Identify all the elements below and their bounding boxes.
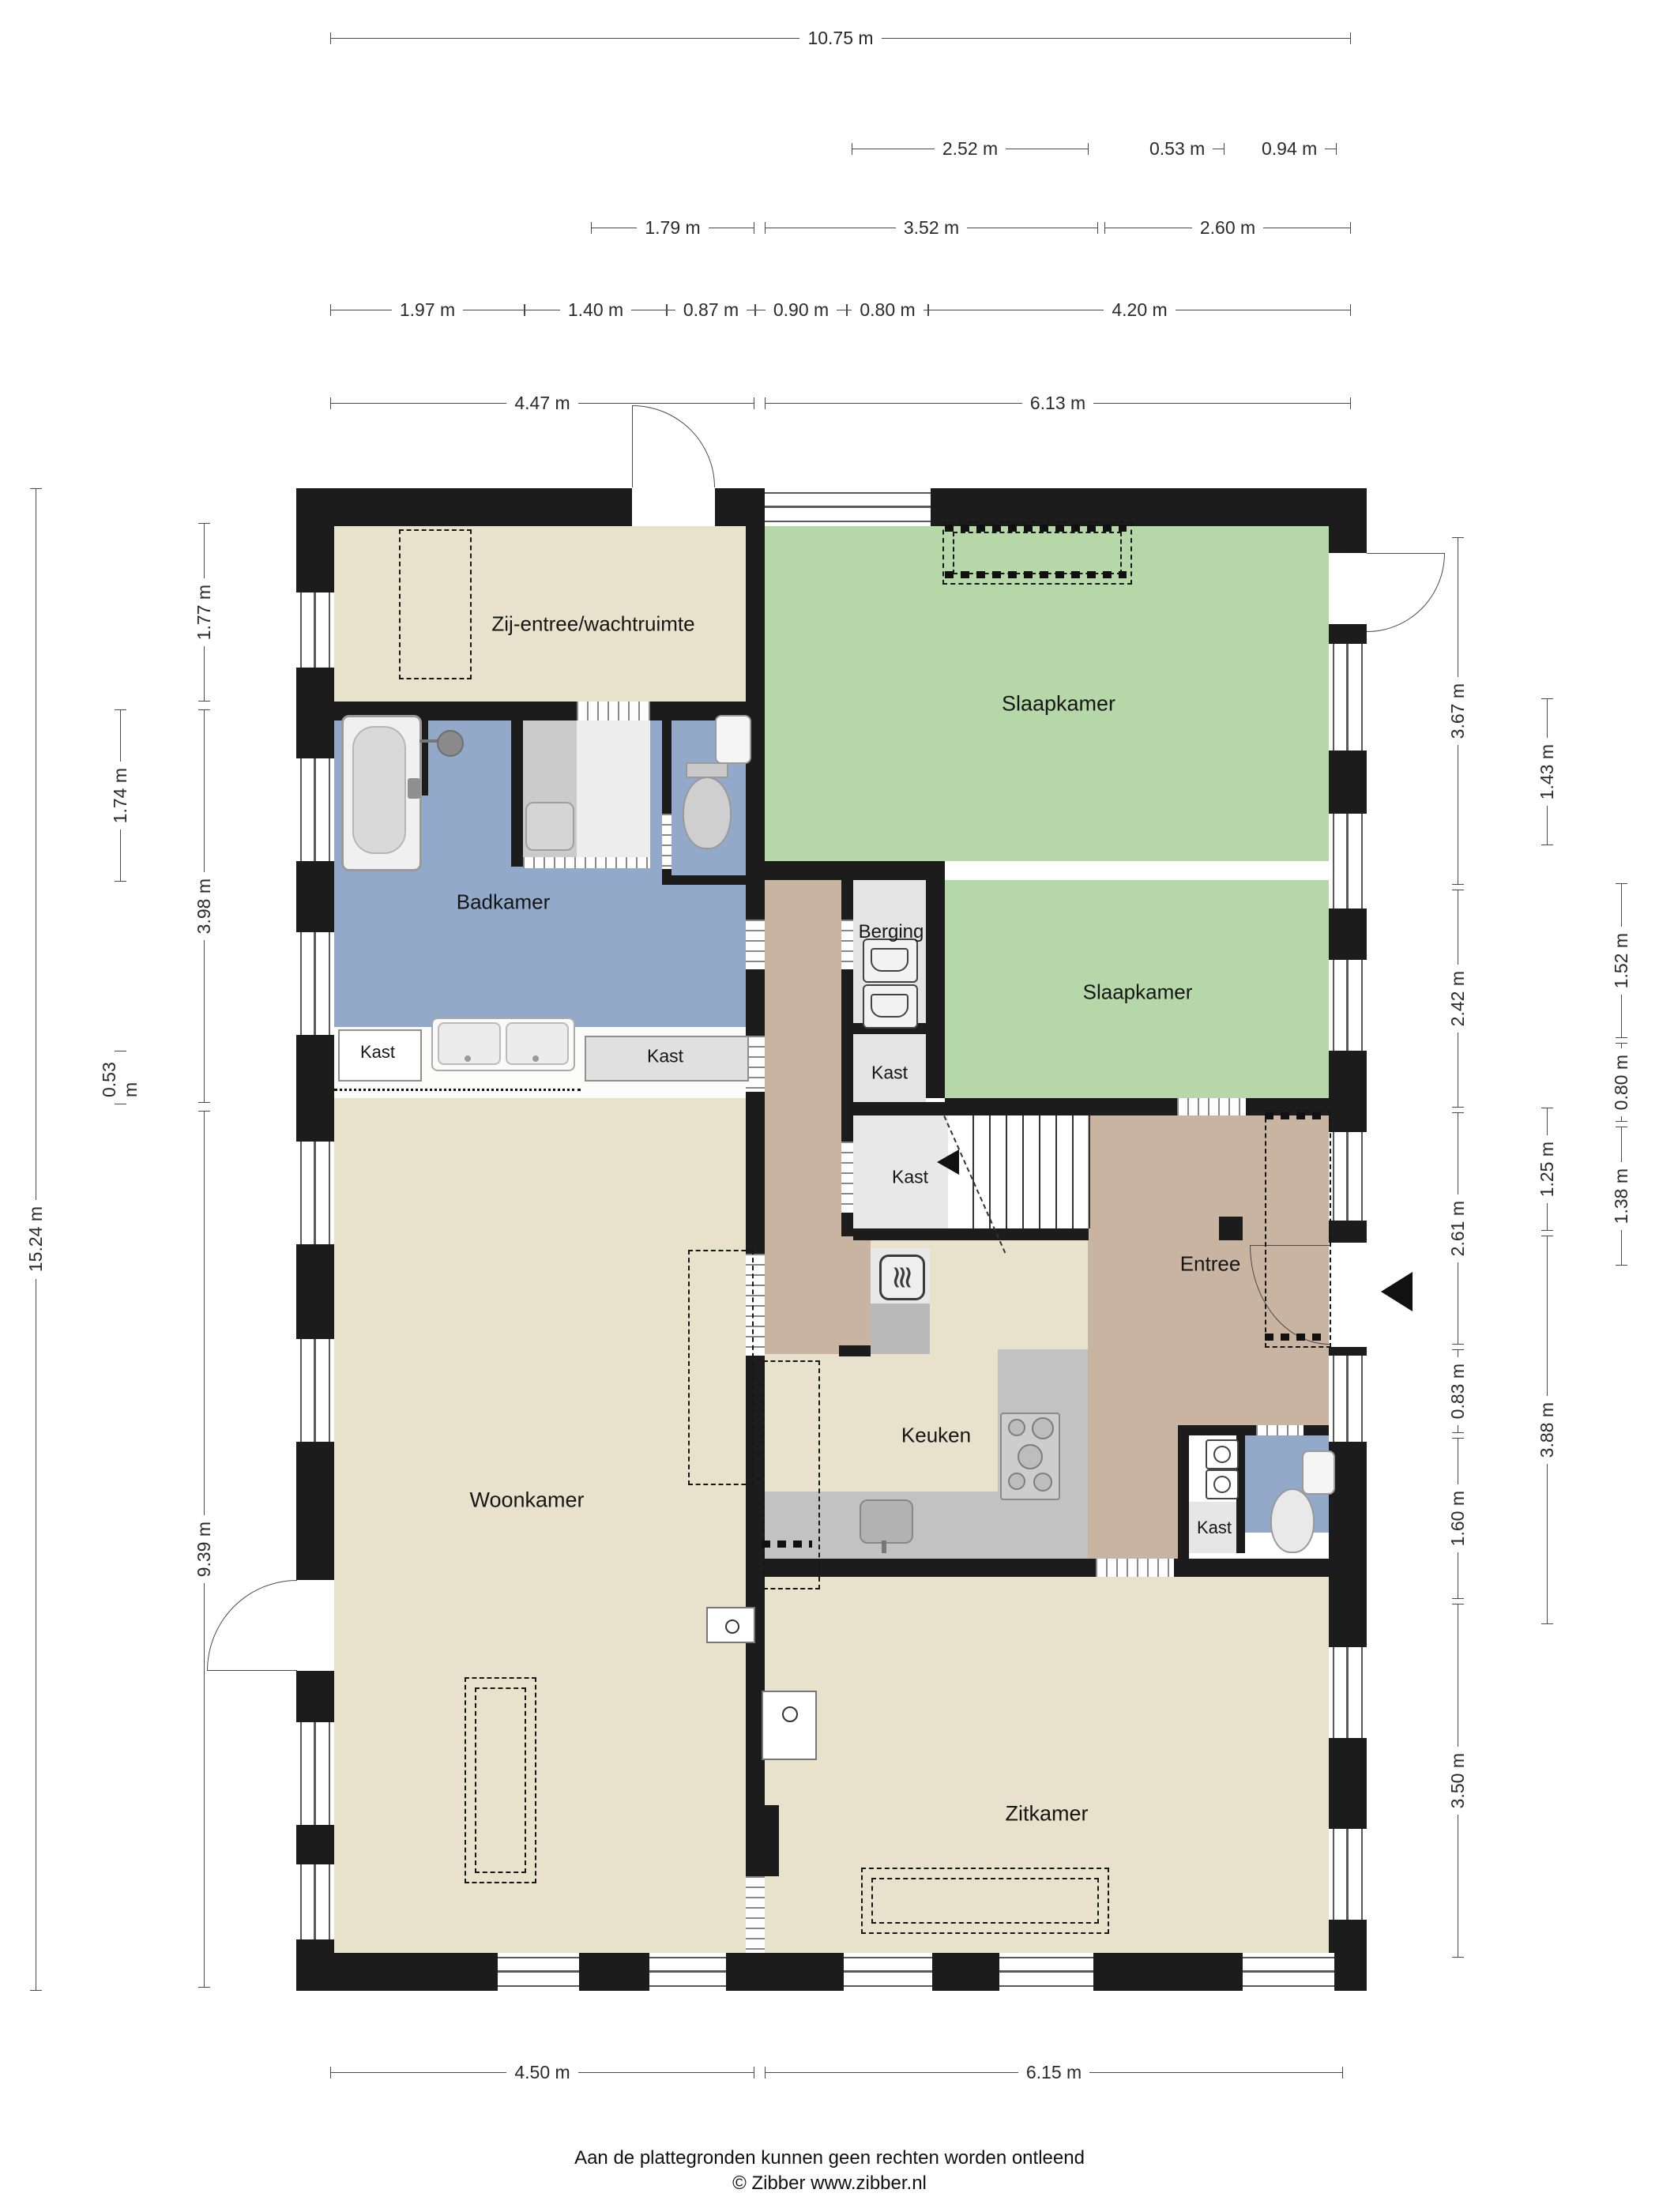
front-door-gap bbox=[1329, 1243, 1367, 1347]
dimension-label: 0.80 m bbox=[1611, 1055, 1632, 1110]
stair-tread bbox=[989, 1115, 991, 1228]
dimension-line bbox=[1458, 1552, 1458, 1598]
door-arc-left bbox=[207, 1580, 297, 1671]
dimension-line bbox=[668, 310, 675, 310]
dashed-marker bbox=[399, 529, 472, 679]
open-boundary-line bbox=[334, 1089, 581, 1091]
window bbox=[296, 1339, 334, 1442]
wall bbox=[839, 1345, 871, 1356]
wall bbox=[746, 526, 765, 720]
dimension-line bbox=[631, 310, 666, 310]
dimension-label: 3.50 m bbox=[1447, 1753, 1469, 1808]
dimension-line bbox=[1616, 1121, 1627, 1122]
door-opening bbox=[746, 1876, 765, 1953]
dimension-line bbox=[1452, 1432, 1464, 1433]
wall bbox=[765, 1559, 1329, 1577]
dimension-label: 1.97 m bbox=[400, 299, 455, 321]
dimension-line bbox=[1350, 397, 1351, 409]
dimension-line bbox=[1547, 699, 1548, 738]
door-opening bbox=[1256, 1425, 1303, 1435]
dimension-line bbox=[1541, 1623, 1553, 1624]
dimension-line bbox=[882, 38, 1350, 39]
dimension-line bbox=[115, 881, 126, 882]
door-opening bbox=[1177, 1098, 1246, 1115]
dotted-marker bbox=[945, 525, 1127, 532]
wall bbox=[296, 488, 632, 526]
boiler-dial bbox=[1213, 1476, 1231, 1493]
wall bbox=[1329, 1738, 1367, 1829]
dimension-label: 0.90 m bbox=[773, 299, 829, 321]
sink-drain bbox=[465, 1055, 471, 1062]
sink-drain bbox=[532, 1055, 539, 1062]
door-opening bbox=[577, 702, 650, 720]
label-berging: Berging bbox=[859, 921, 924, 943]
wall bbox=[926, 880, 945, 1098]
washer-icon-2 bbox=[863, 984, 918, 1029]
dimension-line bbox=[36, 1279, 36, 1990]
window bbox=[765, 488, 931, 526]
stair-tread bbox=[1089, 1115, 1090, 1228]
wall bbox=[1178, 1425, 1189, 1559]
dimension-label: 0.94 m bbox=[1262, 138, 1317, 160]
dimension-line bbox=[1350, 32, 1351, 44]
dimension-label: 0.87 m bbox=[683, 299, 739, 321]
wall bbox=[1329, 750, 1367, 814]
dimension-label: 1.79 m bbox=[645, 217, 700, 239]
dimension-line bbox=[837, 310, 846, 310]
dimension-line bbox=[1176, 310, 1350, 310]
window bbox=[1329, 644, 1367, 750]
window bbox=[844, 1953, 932, 1991]
wall bbox=[931, 488, 1367, 526]
dimension-line bbox=[1547, 806, 1548, 845]
wall bbox=[1093, 1953, 1243, 1991]
dashed-marker bbox=[475, 1687, 526, 1873]
label-kast-4: Kast bbox=[892, 1167, 928, 1188]
door-gap-top bbox=[632, 488, 715, 526]
floorplan-canvas: ≋Zij-entree/wachtruimteSlaapkamerBadkame… bbox=[0, 0, 1659, 2212]
dimension-line bbox=[1458, 1262, 1458, 1344]
label-woonkamer: Woonkamer bbox=[469, 1488, 584, 1513]
wall bbox=[1329, 488, 1367, 553]
dimension-line bbox=[1089, 2072, 1342, 2073]
dimension-line bbox=[120, 710, 121, 762]
door-opening bbox=[841, 1142, 853, 1213]
window bbox=[1243, 1953, 1334, 1991]
heater-gray-patch bbox=[871, 1303, 930, 1354]
dimension-label: 1.77 m bbox=[194, 585, 215, 640]
wall bbox=[841, 1102, 945, 1115]
fixture-box-2 bbox=[762, 1691, 817, 1760]
dimension-line bbox=[36, 489, 36, 1200]
dimension-line bbox=[1342, 2067, 1343, 2078]
dotted-marker bbox=[1265, 1112, 1328, 1119]
label-kast-2: Kast bbox=[647, 1046, 683, 1067]
wall bbox=[662, 875, 755, 885]
stove-burner bbox=[1008, 1473, 1025, 1490]
stair-arrow-icon bbox=[937, 1149, 959, 1175]
dimension-line bbox=[1621, 1230, 1622, 1265]
wall bbox=[726, 1953, 844, 1991]
door-opening bbox=[1096, 1559, 1174, 1577]
dimension-line bbox=[1452, 1598, 1464, 1599]
dimension-label: 1.40 m bbox=[568, 299, 623, 321]
dimension-line bbox=[204, 710, 205, 872]
stair-tread bbox=[1055, 1115, 1057, 1228]
dashed-marker bbox=[688, 1250, 754, 1485]
dimension-line bbox=[754, 397, 754, 409]
toilet-bowl-icon bbox=[683, 777, 732, 849]
dimension-line bbox=[1336, 143, 1337, 155]
label-keuken: Keuken bbox=[901, 1424, 971, 1448]
shower-head-icon bbox=[437, 730, 464, 757]
label-entree: Entree bbox=[1180, 1252, 1241, 1277]
wall bbox=[765, 861, 945, 880]
window bbox=[296, 758, 334, 861]
footer-disclaimer: Aan de plattegronden kunnen geen rechten… bbox=[0, 2147, 1659, 2169]
dimension-line bbox=[1105, 228, 1192, 228]
fixture-circle bbox=[725, 1619, 739, 1634]
dimension-label: 0.83 m bbox=[1447, 1364, 1469, 1419]
dimension-line bbox=[592, 228, 637, 228]
label-kast-1: Kast bbox=[360, 1042, 395, 1063]
kitchen-tap bbox=[882, 1540, 886, 1553]
dimension-line bbox=[1224, 143, 1224, 155]
dimension-line bbox=[1616, 1265, 1627, 1266]
dimension-line bbox=[115, 1104, 126, 1104]
dimension-label: 2.42 m bbox=[1447, 971, 1469, 1026]
fixture-circle bbox=[782, 1706, 798, 1722]
stove-burner bbox=[1008, 1419, 1025, 1436]
label-kast-3: Kast bbox=[871, 1063, 908, 1084]
bathtub-faucet-icon bbox=[408, 778, 420, 799]
room-woonkamer bbox=[334, 1098, 746, 1953]
wall bbox=[511, 720, 523, 867]
dimension-label: 1.38 m bbox=[1611, 1168, 1632, 1224]
passage-area bbox=[577, 720, 650, 857]
window bbox=[1329, 1132, 1367, 1221]
dimension-line bbox=[1263, 228, 1350, 228]
shower-tray-icon bbox=[525, 802, 574, 851]
dimension-line bbox=[1547, 1236, 1548, 1396]
dimension-label: 3.67 m bbox=[1447, 683, 1469, 739]
washer-wave bbox=[871, 994, 908, 1018]
dimension-label: 6.15 m bbox=[1026, 2062, 1082, 2083]
wall bbox=[1329, 624, 1367, 644]
window bbox=[1329, 1829, 1367, 1920]
entrance-marker-icon bbox=[1381, 1272, 1413, 1311]
dimension-line bbox=[1541, 845, 1553, 845]
door-arc-right-top bbox=[1367, 553, 1445, 632]
dimension-line bbox=[1097, 222, 1098, 234]
dimension-line bbox=[204, 524, 205, 578]
dimension-line bbox=[1458, 745, 1458, 884]
dimension-line bbox=[30, 1990, 42, 1991]
dimension-line bbox=[1093, 403, 1350, 404]
dimension-label: 9.39 m bbox=[194, 1522, 215, 1577]
wall bbox=[1329, 1051, 1367, 1132]
wall bbox=[296, 1035, 334, 1142]
wall bbox=[853, 1228, 1089, 1240]
wall bbox=[296, 488, 334, 592]
dimension-line bbox=[1213, 149, 1224, 149]
dimension-line bbox=[204, 646, 205, 701]
stove-burner bbox=[1033, 1473, 1052, 1492]
dimension-line bbox=[1350, 304, 1351, 316]
door-gap-right-top bbox=[1329, 553, 1367, 624]
dimension-label: 3.52 m bbox=[904, 217, 959, 239]
toilet-bowl-icon bbox=[1270, 1488, 1315, 1553]
stair-tread bbox=[1039, 1115, 1040, 1228]
dimension-line bbox=[852, 149, 935, 149]
dimension-label: 2.60 m bbox=[1200, 217, 1255, 239]
label-zij-entree: Zij-entree/wachtruimte bbox=[491, 612, 694, 637]
dimension-line bbox=[331, 403, 506, 404]
dimension-line bbox=[1458, 1113, 1458, 1194]
dashed-marker bbox=[1265, 1110, 1331, 1348]
wall bbox=[296, 861, 334, 932]
dimension-line bbox=[929, 310, 1104, 310]
washer-wave bbox=[871, 948, 908, 972]
dimension-line bbox=[747, 310, 754, 310]
dimension-line bbox=[1458, 1033, 1458, 1107]
wall bbox=[1329, 1920, 1367, 1991]
stair-tread bbox=[1072, 1115, 1074, 1228]
label-kast-5: Kast bbox=[1197, 1518, 1232, 1538]
door-opening bbox=[662, 814, 671, 869]
boiler-dial bbox=[1213, 1446, 1231, 1463]
dimension-label: 0.53 m bbox=[1149, 138, 1205, 160]
wall bbox=[296, 1244, 334, 1339]
dimension-line bbox=[1452, 1957, 1464, 1958]
dimension-line bbox=[754, 222, 754, 234]
wall bbox=[579, 1953, 649, 1991]
fixture-box-1 bbox=[706, 1607, 755, 1643]
wall bbox=[296, 1825, 334, 1864]
dashed-marker bbox=[763, 1360, 820, 1589]
dimension-line bbox=[198, 1987, 210, 1988]
dimension-label: 2.61 m bbox=[1447, 1201, 1469, 1256]
dimension-line bbox=[1458, 1425, 1458, 1432]
wall bbox=[1329, 1347, 1367, 1356]
stair-tread bbox=[972, 1115, 974, 1228]
dimension-line bbox=[967, 228, 1097, 228]
door-opening bbox=[746, 920, 765, 969]
dimension-line bbox=[1621, 1044, 1622, 1048]
wall bbox=[841, 880, 853, 1102]
dotted-marker bbox=[1265, 1334, 1328, 1341]
dimension-line bbox=[1547, 1203, 1548, 1230]
dimension-line bbox=[1452, 884, 1464, 885]
dimension-label: 3.88 m bbox=[1537, 1402, 1558, 1458]
stove-burner bbox=[1018, 1444, 1043, 1469]
dimension-line bbox=[525, 310, 560, 310]
dotted-marker bbox=[945, 571, 1127, 578]
dimension-line bbox=[331, 310, 392, 310]
dimension-line bbox=[120, 829, 121, 881]
hall-west-lower bbox=[765, 1236, 871, 1354]
label-badkamer: Badkamer bbox=[457, 890, 551, 915]
window bbox=[296, 1142, 334, 1244]
wall bbox=[296, 1939, 334, 1991]
window bbox=[498, 1953, 579, 1991]
stair-tread bbox=[1022, 1115, 1024, 1228]
dimension-label: 6.13 m bbox=[1030, 393, 1085, 414]
dimension-label: 2.52 m bbox=[942, 138, 998, 160]
door-opening bbox=[523, 857, 650, 868]
window bbox=[999, 1953, 1093, 1991]
window bbox=[1329, 960, 1367, 1051]
window bbox=[296, 1722, 334, 1825]
dimension-line bbox=[1458, 1604, 1458, 1747]
dimension-line bbox=[1616, 1037, 1627, 1038]
wall bbox=[296, 1442, 334, 1580]
window bbox=[296, 592, 334, 668]
dimension-label: 1.25 m bbox=[1537, 1142, 1558, 1197]
wall bbox=[932, 1953, 999, 1991]
dimension-line bbox=[1621, 884, 1622, 927]
dimension-label: 1.52 m bbox=[1611, 933, 1632, 988]
dimension-label: 3.98 m bbox=[194, 878, 215, 934]
dimension-label: 4.47 m bbox=[514, 393, 570, 414]
dimension-line bbox=[1452, 1344, 1464, 1345]
dimension-line bbox=[754, 2067, 754, 2078]
window bbox=[1329, 814, 1367, 908]
dotted-marker bbox=[762, 1540, 812, 1548]
dimension-line bbox=[1350, 222, 1351, 234]
dimension-line bbox=[1621, 1127, 1622, 1162]
wall bbox=[746, 1805, 779, 1876]
window bbox=[1329, 1356, 1367, 1442]
door-gap-left bbox=[296, 1580, 334, 1671]
dimension-line bbox=[1541, 1230, 1553, 1231]
dimension-line bbox=[331, 38, 799, 39]
dimension-line bbox=[1325, 149, 1336, 149]
stove-burner bbox=[1032, 1417, 1054, 1439]
dimension-line bbox=[1621, 995, 1622, 1037]
dimension-line bbox=[331, 2072, 506, 2073]
dimension-line bbox=[709, 228, 754, 228]
wall bbox=[296, 668, 334, 758]
dimension-label: 0.80 m bbox=[860, 299, 915, 321]
dimension-line bbox=[1547, 1108, 1548, 1135]
washbasin-icon bbox=[715, 715, 751, 764]
dimension-line bbox=[1458, 1350, 1458, 1357]
dimension-line bbox=[198, 1102, 210, 1103]
kitchen-sink-icon bbox=[860, 1499, 913, 1544]
dimension-label: 1.74 m bbox=[110, 768, 131, 823]
dimension-label: 0.53 m bbox=[99, 1058, 141, 1097]
hall-mid bbox=[1088, 1115, 1178, 1559]
dimension-line bbox=[463, 310, 524, 310]
dimension-line bbox=[578, 2072, 754, 2073]
heater-icon: ≋ bbox=[879, 1255, 925, 1300]
dimension-line bbox=[766, 228, 896, 228]
wall bbox=[1329, 908, 1367, 960]
stair-tread bbox=[1006, 1115, 1007, 1228]
dimension-label: 1.60 m bbox=[1447, 1491, 1469, 1546]
dimension-line bbox=[204, 1583, 205, 1987]
toilet-tank bbox=[686, 762, 728, 778]
dimension-line bbox=[204, 940, 205, 1102]
wall bbox=[715, 488, 765, 526]
label-slaapkamer-2: Slaapkamer bbox=[1083, 980, 1193, 1005]
dimension-label: 10.75 m bbox=[807, 28, 873, 49]
dimension-line bbox=[1452, 1107, 1464, 1108]
dimension-label: 4.20 m bbox=[1112, 299, 1167, 321]
door-arc-top bbox=[632, 405, 715, 487]
dimension-line bbox=[1458, 890, 1458, 965]
dimension-line bbox=[1458, 1815, 1458, 1957]
dimension-line bbox=[766, 403, 1022, 404]
bathtub-inner bbox=[352, 726, 406, 854]
dimension-line bbox=[766, 2072, 1018, 2073]
dimension-line bbox=[115, 1051, 126, 1051]
window bbox=[296, 932, 334, 1035]
window bbox=[649, 1953, 726, 1991]
dimension-line bbox=[848, 310, 852, 310]
dimension-line bbox=[1458, 538, 1458, 677]
dashed-marker bbox=[953, 532, 1122, 574]
label-zitkamer: Zitkamer bbox=[1005, 1802, 1088, 1826]
label-slaapkamer-1: Slaapkamer bbox=[1002, 692, 1115, 717]
window bbox=[296, 1864, 334, 1939]
wall bbox=[1219, 1217, 1243, 1240]
window bbox=[1329, 1647, 1367, 1738]
dimension-label: 15.24 m bbox=[25, 1206, 47, 1272]
washbasin-icon bbox=[1302, 1450, 1335, 1495]
wall bbox=[1329, 1221, 1367, 1243]
dimension-label: 1.43 m bbox=[1537, 744, 1558, 799]
dimension-label: 4.50 m bbox=[514, 2062, 570, 2083]
dimension-line bbox=[1088, 143, 1089, 155]
wall bbox=[1178, 1425, 1330, 1435]
dimension-line bbox=[204, 1112, 205, 1515]
dimension-line bbox=[1006, 149, 1088, 149]
dimension-line bbox=[578, 403, 754, 404]
dashed-marker bbox=[871, 1878, 1099, 1924]
dimension-line bbox=[198, 701, 210, 702]
dimension-line bbox=[1458, 1439, 1458, 1484]
dimension-line bbox=[1547, 1464, 1548, 1623]
washer-icon-1 bbox=[863, 939, 918, 983]
footer-credit: © Zibber www.zibber.nl bbox=[0, 2172, 1659, 2195]
wall bbox=[296, 1671, 334, 1722]
door-opening bbox=[841, 920, 853, 969]
dimension-line bbox=[756, 310, 766, 310]
